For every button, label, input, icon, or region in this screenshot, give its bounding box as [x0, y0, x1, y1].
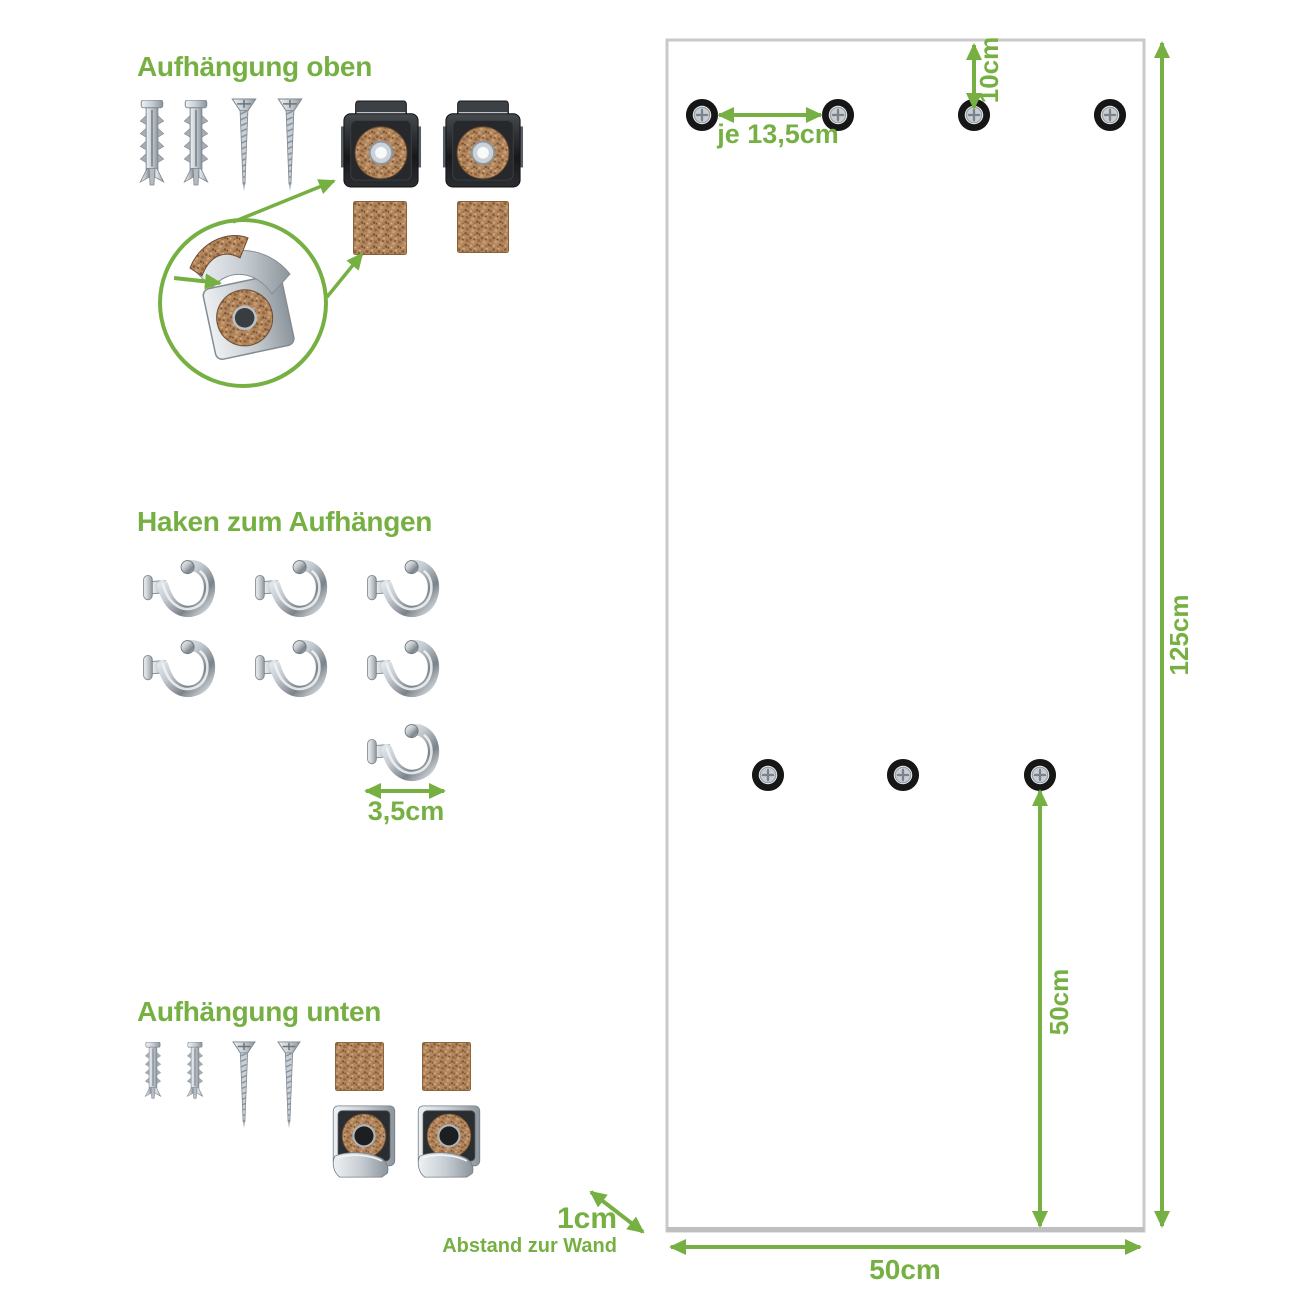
mounting-instruction-diagram: Aufhängung oben Haken zum Aufhängen Aufh…: [0, 0, 1300, 1300]
callout-line-clip: [233, 181, 334, 222]
cork-pad-icon: [422, 1042, 470, 1090]
section-title-bottom-mount: Aufhängung unten: [137, 997, 381, 1026]
screw-hole-icon: [887, 759, 919, 791]
wall-plug-icon: [184, 100, 207, 185]
screw-icon: [278, 1042, 300, 1128]
hook-icon: [144, 561, 210, 612]
mounting-clip-icon: [443, 101, 523, 187]
panel: [667, 40, 1144, 1232]
diagram-graphics: [0, 0, 1300, 1300]
wall-plug-icon: [145, 1042, 161, 1098]
wall-plug-icon: [187, 1042, 203, 1098]
wall-plug-icon: [140, 100, 163, 185]
dim-width-label: 50cm: [835, 1255, 975, 1284]
mounting-clip-icon: [333, 1106, 395, 1177]
screw-hole-icon: [752, 759, 784, 791]
screw-icon: [278, 99, 302, 191]
bottom-mount-hardware: [145, 1042, 480, 1177]
panel-outline: [667, 40, 1144, 1231]
screw-hole-icon: [1094, 99, 1126, 131]
hook-icon: [368, 725, 434, 776]
cork-pad-icon: [354, 202, 407, 255]
dim-wall-gap-caption: Abstand zur Wand: [417, 1236, 617, 1257]
magnifier-detail: [160, 181, 362, 386]
dim-hole-spacing-label: je 13,5cm: [703, 120, 853, 148]
screw-hole-icon: [1024, 759, 1056, 791]
hook-icon: [368, 561, 434, 612]
hook-icon: [368, 641, 434, 692]
dim-mid-height-label: 50cm: [1046, 952, 1076, 1052]
hooks-hardware: [144, 561, 434, 776]
section-title-top-mount: Aufhängung oben: [137, 52, 372, 81]
panel-bottom-edge: [667, 1227, 1144, 1232]
hook-icon: [144, 641, 210, 692]
cork-pad-icon: [335, 1042, 383, 1090]
dim-hook-spacing-label: 3,5cm: [346, 797, 466, 825]
cork-pad-icon: [457, 201, 508, 252]
mounting-clip-icon: [341, 101, 421, 187]
dim-top-offset-label: 10cm: [976, 25, 1006, 115]
section-title-hooks: Haken zum Aufhängen: [137, 507, 432, 536]
hook-icon: [256, 561, 322, 612]
callout-line-cork: [327, 254, 362, 297]
mounting-clip-icon: [418, 1106, 480, 1177]
dim-height-label: 125cm: [1166, 580, 1196, 690]
screw-icon: [232, 99, 256, 191]
screw-icon: [233, 1042, 255, 1128]
hook-icon: [256, 641, 322, 692]
dim-wall-gap-label: 1cm: [467, 1203, 617, 1235]
